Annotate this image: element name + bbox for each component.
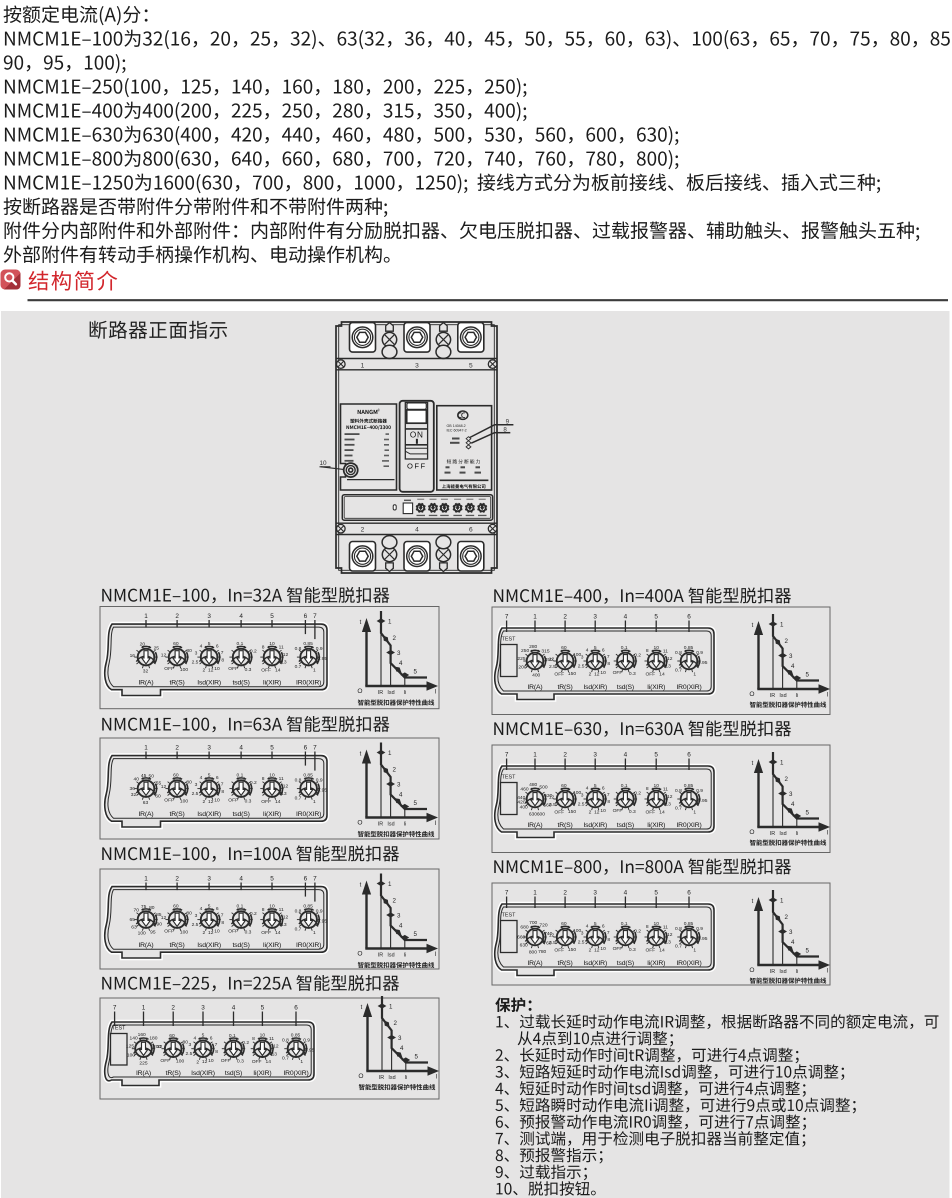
- svg-text:13: 13: [281, 791, 287, 797]
- svg-text:10: 10: [269, 773, 275, 779]
- svg-text:3: 3: [581, 793, 584, 799]
- svg-text:10: 10: [653, 645, 659, 651]
- svg-text:OFF: OFF: [613, 808, 623, 814]
- svg-text:0.85: 0.85: [303, 904, 313, 910]
- svg-text:2: 2: [203, 930, 206, 936]
- svg-text:100: 100: [180, 798, 188, 804]
- svg-text:75: 75: [141, 904, 147, 910]
- svg-text:8: 8: [646, 924, 649, 930]
- svg-text:8: 8: [215, 1049, 218, 1055]
- svg-text:6: 6: [304, 745, 308, 752]
- svg-text:12: 12: [549, 656, 555, 662]
- svg-text:7: 7: [505, 752, 509, 759]
- svg-text:3: 3: [789, 653, 793, 660]
- svg-text:60: 60: [155, 793, 161, 799]
- svg-text:40: 40: [133, 777, 139, 783]
- svg-text:3: 3: [201, 1005, 205, 1012]
- svg-text:11: 11: [269, 1036, 274, 1042]
- svg-text:5: 5: [270, 745, 274, 752]
- svg-text:Ii: Ii: [404, 822, 407, 828]
- svg-text:2: 2: [785, 914, 789, 921]
- svg-text:5: 5: [414, 931, 418, 938]
- svg-text:0.9: 0.9: [696, 650, 703, 656]
- svg-text:5: 5: [469, 362, 473, 369]
- svg-text:5: 5: [594, 921, 597, 927]
- svg-text:OFF: OFF: [613, 670, 623, 676]
- svg-text:8: 8: [262, 907, 265, 913]
- svg-text:8: 8: [607, 799, 610, 805]
- svg-text:0.9: 0.9: [316, 646, 323, 652]
- svg-text:80: 80: [149, 905, 155, 911]
- svg-text:TEST: TEST: [502, 637, 516, 643]
- svg-text:1: 1: [144, 745, 148, 752]
- svg-text:11: 11: [663, 649, 668, 655]
- svg-text:5: 5: [594, 783, 597, 789]
- svg-text:Isd(XIR): Isd(XIR): [197, 811, 221, 818]
- svg-text:Isd: Isd: [388, 1075, 395, 1081]
- svg-text:4: 4: [399, 660, 403, 667]
- svg-text:2: 2: [563, 890, 567, 897]
- svg-text:Ii: Ii: [796, 831, 799, 837]
- svg-text:6: 6: [216, 644, 219, 650]
- svg-text:4: 4: [400, 1045, 404, 1052]
- svg-text:60: 60: [173, 904, 179, 910]
- svg-text:OFF: OFF: [160, 1058, 170, 1064]
- svg-text:tsd(S): tsd(S): [617, 822, 634, 829]
- svg-text:0.8: 0.8: [675, 788, 682, 794]
- svg-text:tR(S): tR(S): [558, 684, 573, 691]
- svg-text:5: 5: [270, 876, 274, 883]
- svg-text:1: 1: [533, 614, 537, 621]
- svg-text:440: 440: [517, 795, 525, 801]
- svg-text:10: 10: [320, 460, 328, 467]
- svg-text:460: 460: [520, 786, 528, 792]
- svg-text:180: 180: [149, 1036, 157, 1042]
- svg-text:0.3: 0.3: [629, 947, 636, 953]
- svg-text:7: 7: [607, 792, 610, 798]
- svg-text:2: 2: [785, 638, 789, 645]
- svg-text:60: 60: [173, 773, 179, 779]
- svg-text:2.5: 2.5: [578, 801, 585, 807]
- svg-text:4: 4: [239, 745, 243, 752]
- svg-text:3: 3: [789, 791, 793, 798]
- svg-text:5: 5: [415, 1054, 419, 1061]
- svg-text:1: 1: [780, 898, 784, 905]
- svg-text:0.7: 0.7: [282, 1055, 289, 1061]
- svg-text:0.85: 0.85: [291, 1033, 301, 1039]
- svg-text:3: 3: [593, 614, 597, 621]
- svg-text:Isd(XIR): Isd(XIR): [583, 960, 607, 967]
- svg-text:10: 10: [653, 921, 659, 927]
- svg-text:1: 1: [300, 1059, 303, 1065]
- svg-text:12: 12: [202, 1059, 208, 1065]
- svg-text:8: 8: [221, 657, 224, 663]
- svg-text:IR(A): IR(A): [136, 1070, 151, 1077]
- svg-text:O: O: [358, 1073, 363, 1080]
- svg-text:0.95: 0.95: [318, 788, 328, 794]
- svg-text:2.5: 2.5: [185, 1051, 192, 1057]
- svg-text:2: 2: [589, 672, 592, 678]
- svg-text:0.85: 0.85: [684, 921, 694, 927]
- svg-text:tR(S): tR(S): [558, 960, 573, 967]
- svg-text:0.95: 0.95: [698, 660, 708, 666]
- svg-text:480: 480: [529, 782, 537, 788]
- svg-text:0.9: 0.9: [303, 1038, 310, 1044]
- svg-text:6: 6: [304, 876, 308, 883]
- svg-text:10: 10: [214, 666, 220, 672]
- svg-text:14: 14: [659, 947, 665, 953]
- svg-text:IR0(XIR): IR0(XIR): [676, 960, 701, 967]
- svg-text:4: 4: [586, 924, 589, 930]
- svg-text:0.2: 0.2: [250, 780, 257, 786]
- svg-text:5: 5: [806, 948, 810, 955]
- svg-text:OFF: OFF: [228, 929, 238, 935]
- svg-text:12: 12: [161, 784, 167, 790]
- svg-text:0.3: 0.3: [245, 667, 252, 673]
- svg-text:660: 660: [517, 934, 525, 940]
- svg-text:14: 14: [275, 667, 281, 673]
- svg-text:2.5: 2.5: [192, 660, 199, 666]
- svg-text:IR0(XIR): IR0(XIR): [676, 684, 701, 691]
- svg-text:Isd: Isd: [387, 953, 394, 959]
- svg-text:2: 2: [175, 745, 179, 752]
- svg-text:8: 8: [503, 426, 507, 433]
- svg-text:7: 7: [607, 930, 610, 936]
- svg-text:0.85: 0.85: [684, 645, 694, 651]
- svg-text:3: 3: [593, 752, 597, 759]
- svg-text:IR(A): IR(A): [138, 942, 153, 949]
- svg-text:2: 2: [171, 1005, 175, 1012]
- svg-text:OFF: OFF: [164, 798, 174, 804]
- svg-text:1: 1: [693, 947, 696, 953]
- svg-text:80: 80: [186, 780, 192, 786]
- svg-text:0.95: 0.95: [698, 936, 708, 942]
- svg-text:8: 8: [607, 661, 610, 667]
- svg-text:12: 12: [549, 932, 555, 938]
- svg-text:8: 8: [262, 776, 265, 782]
- svg-text:tR(S): tR(S): [170, 942, 185, 949]
- svg-text:OFF: OFF: [261, 799, 271, 805]
- svg-text:140: 140: [130, 1036, 138, 1042]
- svg-text:OFF: OFF: [554, 809, 564, 815]
- svg-text:6: 6: [602, 786, 605, 792]
- svg-text:0.8: 0.8: [282, 1038, 289, 1044]
- svg-text:250: 250: [521, 648, 529, 654]
- svg-text:4: 4: [624, 890, 628, 897]
- svg-text:600: 600: [537, 811, 545, 817]
- svg-text:3: 3: [593, 890, 597, 897]
- svg-text:OFF: OFF: [261, 930, 271, 936]
- svg-text:25: 25: [154, 646, 160, 652]
- svg-text:4: 4: [239, 876, 243, 883]
- svg-text:0.2: 0.2: [634, 928, 641, 934]
- svg-text:0.3: 0.3: [245, 929, 252, 935]
- svg-text:8: 8: [646, 786, 649, 792]
- svg-text:80: 80: [182, 1040, 188, 1046]
- svg-text:6: 6: [216, 775, 219, 781]
- svg-text:tsd(S): tsd(S): [232, 679, 249, 686]
- svg-text:7: 7: [221, 650, 224, 656]
- svg-text:IR(A): IR(A): [527, 960, 542, 967]
- svg-text:6: 6: [216, 906, 219, 912]
- svg-text:7: 7: [113, 1005, 117, 1012]
- svg-text:2: 2: [394, 1020, 398, 1027]
- svg-text:Ii(XIR): Ii(XIR): [263, 942, 281, 949]
- svg-text:7: 7: [505, 614, 509, 621]
- svg-text:5: 5: [654, 752, 658, 759]
- svg-text:3: 3: [397, 650, 401, 657]
- svg-text:0.95: 0.95: [318, 656, 328, 662]
- svg-text:IR0(XIR): IR0(XIR): [296, 679, 321, 686]
- svg-text:0.7: 0.7: [675, 806, 682, 812]
- svg-text:Ii: Ii: [404, 953, 407, 959]
- svg-text:65: 65: [129, 917, 135, 923]
- svg-text:0.7: 0.7: [295, 926, 302, 932]
- svg-text:TEST: TEST: [112, 1026, 126, 1032]
- svg-text:IR(A): IR(A): [138, 811, 153, 818]
- svg-text:7: 7: [221, 913, 224, 919]
- svg-text:150: 150: [568, 947, 576, 953]
- svg-text:5: 5: [594, 645, 597, 651]
- svg-text:OFF: OFF: [646, 671, 656, 677]
- svg-text:IR: IR: [770, 831, 775, 837]
- svg-text:0.1: 0.1: [229, 1033, 236, 1039]
- svg-text:4: 4: [399, 923, 403, 930]
- svg-text:4: 4: [232, 1005, 236, 1012]
- svg-text:4: 4: [586, 648, 589, 654]
- svg-text:OFF: OFF: [164, 929, 174, 935]
- svg-text:32: 32: [131, 792, 137, 798]
- svg-text:63: 63: [143, 800, 149, 806]
- svg-text:tR(S): tR(S): [166, 1070, 181, 1077]
- svg-text:Isd(XIR): Isd(XIR): [197, 942, 221, 949]
- svg-text:45: 45: [141, 773, 147, 779]
- svg-text:0.2: 0.2: [250, 648, 257, 654]
- svg-text:0.1: 0.1: [621, 783, 628, 789]
- svg-text:1: 1: [780, 622, 784, 629]
- svg-text:5: 5: [202, 1033, 205, 1039]
- svg-text:Isd: Isd: [779, 693, 786, 699]
- svg-text:IR0(XIR): IR0(XIR): [676, 822, 701, 829]
- svg-text:12: 12: [594, 672, 600, 678]
- svg-text:630: 630: [520, 943, 528, 949]
- svg-text:6: 6: [602, 924, 605, 930]
- svg-text:4: 4: [624, 614, 628, 621]
- svg-text:Isd: Isd: [387, 690, 394, 696]
- svg-text:3: 3: [207, 745, 211, 752]
- svg-text:12: 12: [283, 652, 289, 658]
- svg-text:7: 7: [505, 890, 509, 897]
- svg-text:3: 3: [397, 782, 401, 789]
- svg-text:6: 6: [602, 648, 605, 654]
- svg-text:14: 14: [659, 671, 665, 677]
- svg-text:2: 2: [589, 948, 592, 954]
- svg-text:OFF: OFF: [554, 671, 564, 677]
- svg-text:10: 10: [269, 641, 275, 647]
- svg-text:IR: IR: [770, 693, 775, 699]
- svg-text:2: 2: [175, 613, 179, 620]
- svg-text:5: 5: [654, 890, 658, 897]
- svg-text:0.9: 0.9: [696, 926, 703, 932]
- svg-text:OFF: OFF: [228, 798, 238, 804]
- svg-text:0.7: 0.7: [675, 668, 682, 674]
- svg-text:5: 5: [261, 1005, 265, 1012]
- svg-text:10: 10: [269, 904, 275, 910]
- svg-text:1: 1: [313, 930, 316, 936]
- svg-text:0.8: 0.8: [675, 650, 682, 656]
- svg-text:6: 6: [294, 1005, 298, 1012]
- svg-text:0.3: 0.3: [629, 671, 636, 677]
- svg-text:Isd(XIR): Isd(XIR): [583, 684, 607, 691]
- svg-text:630: 630: [529, 812, 537, 818]
- svg-text:0.85: 0.85: [303, 641, 313, 647]
- svg-text:1: 1: [313, 799, 316, 805]
- svg-text:100: 100: [176, 1059, 184, 1065]
- svg-text:8: 8: [646, 648, 649, 654]
- svg-text:9: 9: [506, 418, 510, 425]
- svg-text:1: 1: [780, 760, 784, 767]
- svg-text:225: 225: [139, 1060, 147, 1066]
- svg-text:13: 13: [281, 922, 287, 928]
- svg-text:5: 5: [208, 904, 211, 910]
- svg-text:14: 14: [265, 1059, 271, 1065]
- svg-text:12: 12: [157, 1044, 163, 1050]
- svg-text:Ii(XIR): Ii(XIR): [253, 1070, 271, 1077]
- svg-text:2.5: 2.5: [549, 664, 556, 670]
- svg-text:0.1: 0.1: [236, 641, 243, 647]
- svg-text:IR: IR: [378, 822, 383, 828]
- svg-text:0.2: 0.2: [634, 790, 641, 796]
- svg-text:Ii: Ii: [796, 969, 799, 975]
- svg-text:150: 150: [568, 809, 576, 815]
- svg-text:8: 8: [607, 937, 610, 943]
- svg-text:4: 4: [200, 644, 203, 650]
- svg-text:1: 1: [388, 619, 392, 626]
- svg-text:6: 6: [687, 614, 691, 621]
- svg-text:12: 12: [208, 668, 214, 674]
- svg-text:6: 6: [687, 752, 691, 759]
- svg-text:tR(S): tR(S): [558, 822, 573, 829]
- svg-text:6: 6: [210, 1035, 213, 1041]
- svg-text:16: 16: [130, 653, 136, 659]
- svg-text:100: 100: [180, 929, 188, 935]
- svg-text:IR0(XIR): IR0(XIR): [283, 1070, 308, 1077]
- svg-text:5: 5: [654, 614, 658, 621]
- svg-text:12: 12: [667, 656, 673, 662]
- svg-text:3: 3: [581, 655, 584, 661]
- svg-text:Ii: Ii: [405, 1075, 408, 1081]
- svg-text:780: 780: [538, 949, 546, 955]
- svg-text:20: 20: [140, 642, 146, 648]
- svg-text:IR0(XIR): IR0(XIR): [296, 942, 321, 949]
- svg-text:4: 4: [624, 752, 628, 759]
- svg-text:12: 12: [594, 810, 600, 816]
- svg-text:4: 4: [791, 801, 795, 808]
- svg-text:10: 10: [214, 798, 220, 804]
- svg-text:1: 1: [693, 809, 696, 815]
- svg-text:0.7: 0.7: [295, 664, 302, 670]
- svg-text:Ii(XIR): Ii(XIR): [647, 822, 665, 829]
- svg-text:500: 500: [539, 785, 547, 791]
- svg-text:OFF: OFF: [221, 1058, 231, 1064]
- svg-text:0.3: 0.3: [629, 809, 636, 815]
- svg-text:IR(A): IR(A): [527, 684, 542, 691]
- svg-text:Isd(XIR): Isd(XIR): [583, 822, 607, 829]
- svg-text:5: 5: [806, 810, 810, 817]
- svg-text:1: 1: [533, 890, 537, 897]
- svg-text:14: 14: [659, 809, 665, 815]
- svg-text:12: 12: [283, 784, 289, 790]
- svg-text:Ii(XIR): Ii(XIR): [263, 811, 281, 818]
- svg-text:3: 3: [581, 931, 584, 937]
- svg-text:Isd(XIR): Isd(XIR): [191, 1070, 215, 1077]
- svg-text:2: 2: [785, 776, 789, 783]
- svg-text:60: 60: [169, 1033, 175, 1039]
- svg-text:OFF: OFF: [252, 1059, 262, 1065]
- svg-text:Isd: Isd: [779, 969, 786, 975]
- svg-text:10: 10: [600, 670, 606, 676]
- svg-text:11: 11: [663, 787, 668, 793]
- svg-text:8: 8: [221, 789, 224, 795]
- svg-text:63: 63: [131, 924, 137, 930]
- svg-text:3: 3: [207, 613, 211, 620]
- svg-text:0.8: 0.8: [295, 909, 302, 915]
- svg-text:100: 100: [127, 1052, 135, 1058]
- svg-text:11: 11: [663, 925, 668, 931]
- svg-text:12: 12: [283, 915, 289, 921]
- svg-text:11: 11: [279, 776, 284, 782]
- svg-text:6: 6: [469, 527, 473, 534]
- svg-text:10: 10: [208, 1058, 214, 1064]
- svg-text:ON: ON: [410, 431, 424, 440]
- svg-text:OFF: OFF: [407, 461, 427, 470]
- svg-text:160: 160: [138, 1032, 146, 1038]
- svg-text:O: O: [749, 967, 754, 974]
- svg-text:60: 60: [561, 645, 567, 651]
- svg-text:680: 680: [520, 924, 528, 930]
- svg-text:70: 70: [133, 908, 139, 914]
- svg-text:4: 4: [194, 1035, 197, 1041]
- svg-text:50: 50: [148, 774, 154, 780]
- svg-text:tsd(S): tsd(S): [225, 1070, 242, 1077]
- svg-text:IR: IR: [379, 1075, 384, 1081]
- svg-text:1: 1: [144, 613, 148, 620]
- svg-text:8: 8: [262, 644, 265, 650]
- svg-text:13: 13: [272, 1051, 278, 1057]
- svg-text:12: 12: [161, 653, 167, 659]
- svg-text:0.9: 0.9: [316, 778, 323, 784]
- svg-text:Isd: Isd: [779, 831, 786, 837]
- svg-text:1: 1: [693, 671, 696, 677]
- svg-text:0.8: 0.8: [675, 926, 682, 932]
- svg-text:OFF: OFF: [613, 946, 623, 952]
- svg-text:Ii(XIR): Ii(XIR): [647, 684, 665, 691]
- svg-text:200: 200: [518, 665, 526, 671]
- svg-text:12: 12: [208, 799, 214, 805]
- svg-text:1: 1: [142, 1005, 146, 1012]
- svg-text:13: 13: [281, 660, 287, 666]
- svg-text:2.5: 2.5: [549, 802, 556, 808]
- svg-text:7: 7: [215, 1042, 218, 1048]
- svg-text:12: 12: [549, 794, 555, 800]
- svg-text:7: 7: [221, 782, 224, 788]
- svg-text:0.85: 0.85: [303, 773, 313, 779]
- svg-text:1: 1: [388, 881, 392, 888]
- svg-text:IR(A): IR(A): [138, 679, 153, 686]
- svg-text:0.85: 0.85: [684, 783, 694, 789]
- svg-text:2: 2: [589, 810, 592, 816]
- svg-text:12: 12: [667, 932, 673, 938]
